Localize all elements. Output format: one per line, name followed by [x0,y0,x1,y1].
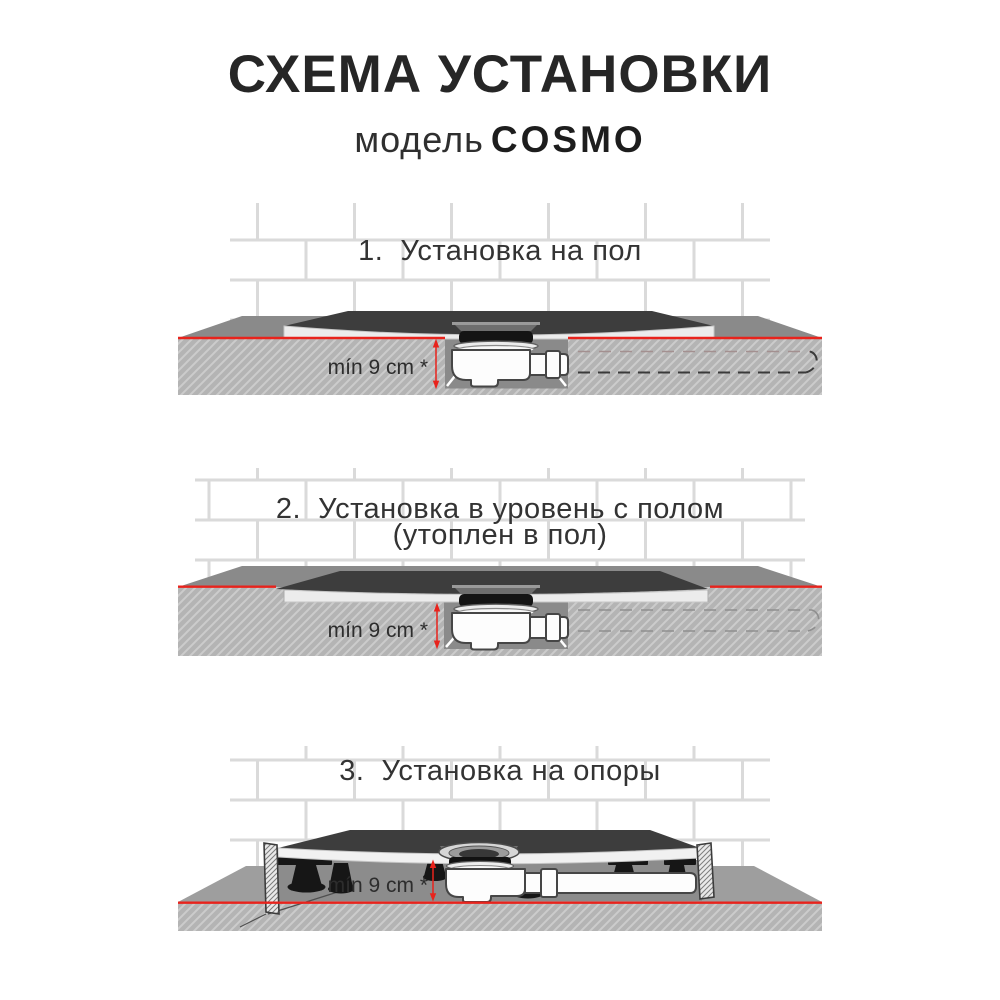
dimension-label-3: mín 9 cm * [328,875,428,896]
section-1-title: Установка на пол [400,235,641,267]
section-3-number: 3. [339,755,364,787]
section-3-title: Установка на опоры [381,755,660,787]
tray-side-panel-right [697,843,714,899]
diagram-install-on-floor [178,203,822,395]
section-2-subtitle: (утоплен в пол) [0,521,1000,550]
dimension-label-2: mín 9 cm * [328,620,428,641]
section-3-heading: 3.Установка на опоры [0,757,1000,786]
section-1-number: 1. [358,235,383,267]
dimension-label-1: mín 9 cm * [328,357,428,378]
section-1-heading: 1.Установка на пол [0,237,1000,266]
installation-scheme-page: { "page": { "title": "СХЕМА УСТАНОВКИ", … [0,0,1000,1000]
page-title: СХЕМА УСТАНОВКИ [0,44,1000,105]
section-2-title-line2: (утоплен в пол) [393,519,608,551]
model-label: модель [354,119,484,160]
model-name: COSMO [491,119,646,160]
model-subtitle: модельCOSMO [0,119,1000,161]
